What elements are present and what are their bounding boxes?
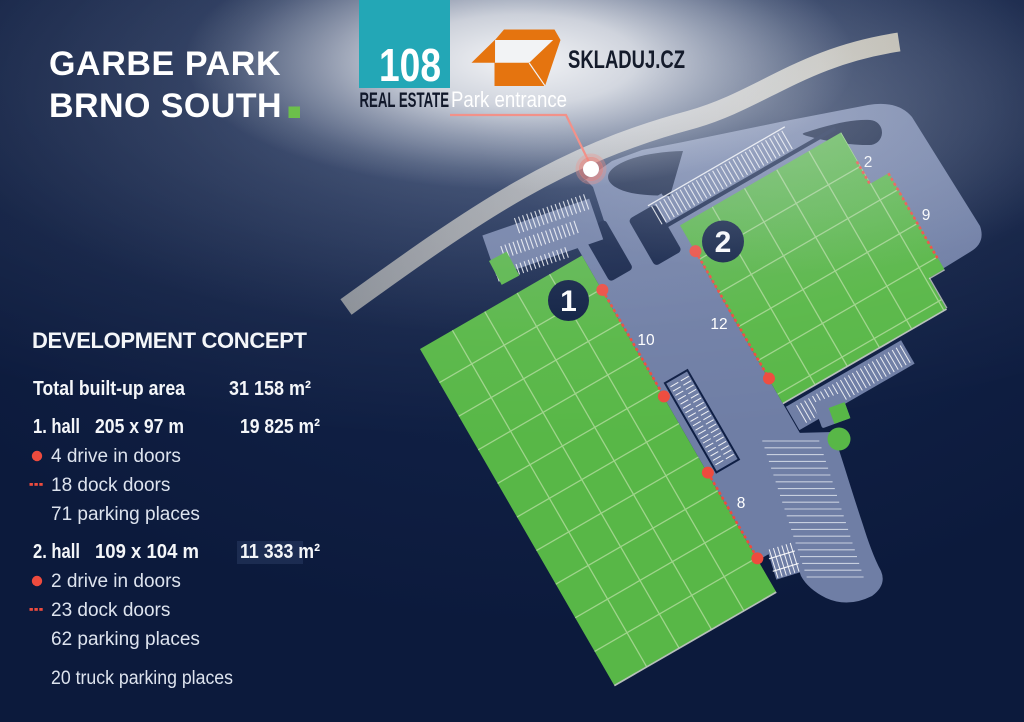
svg-text:31 158 m²: 31 158 m² [229, 378, 311, 400]
svg-text:Total built-up area: Total built-up area [33, 378, 186, 400]
svg-text:18 dock doors: 18 dock doors [51, 475, 170, 496]
svg-text:19 825 m²: 19 825 m² [240, 416, 320, 438]
svg-text:DEVELOPMENT CONCEPT: DEVELOPMENT CONCEPT [32, 328, 308, 353]
svg-text:REAL ESTATE: REAL ESTATE [360, 88, 450, 112]
svg-text:2 drive in doors: 2 drive in doors [51, 571, 181, 592]
svg-text:71 parking places: 71 parking places [51, 504, 200, 525]
svg-text:108: 108 [379, 39, 441, 91]
svg-text:GARBE PARK: GARBE PARK [49, 45, 281, 83]
svg-text:Park entrance: Park entrance [451, 87, 567, 112]
svg-text:8: 8 [737, 495, 746, 512]
svg-text:23 dock doors: 23 dock doors [51, 600, 170, 621]
svg-text:4 drive in doors: 4 drive in doors [51, 446, 181, 467]
svg-text:SKLADUJ.CZ: SKLADUJ.CZ [568, 46, 685, 74]
svg-text:20 truck parking places: 20 truck parking places [51, 668, 233, 689]
svg-text:1. hall: 1. hall [33, 416, 80, 438]
svg-text:62 parking places: 62 parking places [51, 629, 200, 650]
svg-text:109 x 104 m: 109 x 104 m [95, 541, 199, 563]
svg-text:2. hall: 2. hall [33, 541, 80, 563]
svg-text:205 x 97 m: 205 x 97 m [95, 416, 184, 438]
svg-text:11 333 m²: 11 333 m² [240, 541, 320, 563]
svg-text:BRNO SOUTH: BRNO SOUTH [49, 87, 282, 125]
